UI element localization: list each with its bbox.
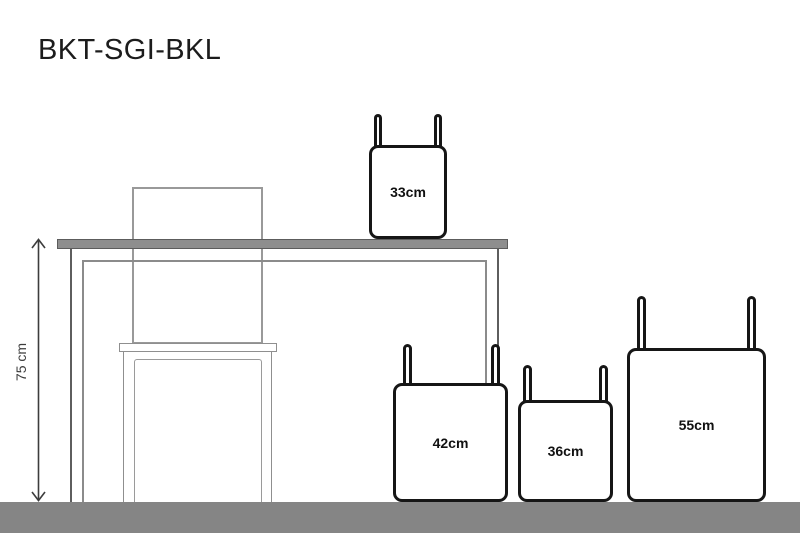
bag-handle-left — [374, 114, 382, 149]
bag-handle-left — [523, 365, 532, 404]
bag-handle-left — [637, 296, 646, 352]
chair-legs-inner — [134, 359, 262, 502]
table-leg-left-outer — [70, 248, 72, 502]
bag-33: 33cm — [369, 145, 447, 239]
bag-size-label: 42cm — [433, 435, 469, 451]
bag-size-label: 36cm — [548, 443, 584, 459]
bag-handle-right — [434, 114, 442, 149]
table-apron-line — [82, 260, 485, 262]
chair-seat — [119, 343, 277, 352]
diagram-canvas: BKT-SGI-BKL 75 cm 33cm 42cm — [0, 0, 800, 533]
bag-55: 55cm — [627, 348, 766, 502]
height-dimension-arrow-icon — [28, 236, 50, 504]
product-title: BKT-SGI-BKL — [38, 34, 221, 67]
bag-body: 42cm — [393, 383, 508, 502]
bag-handle-right — [599, 365, 608, 404]
bag-body: 36cm — [518, 400, 613, 502]
floor — [0, 502, 800, 533]
bag-handle-right — [747, 296, 756, 352]
bag-body: 55cm — [627, 348, 766, 502]
height-dimension-label: 75 cm — [13, 332, 29, 392]
bag-36: 36cm — [518, 400, 613, 502]
bag-handle-left — [403, 344, 412, 387]
chair-back — [132, 187, 263, 344]
bag-size-label: 55cm — [679, 417, 715, 433]
bag-body: 33cm — [369, 145, 447, 239]
table-leg-left-inner — [82, 260, 84, 502]
bag-handle-right — [491, 344, 500, 387]
bag-42: 42cm — [393, 383, 508, 502]
bag-size-label: 33cm — [390, 184, 426, 200]
table-top — [57, 239, 508, 249]
